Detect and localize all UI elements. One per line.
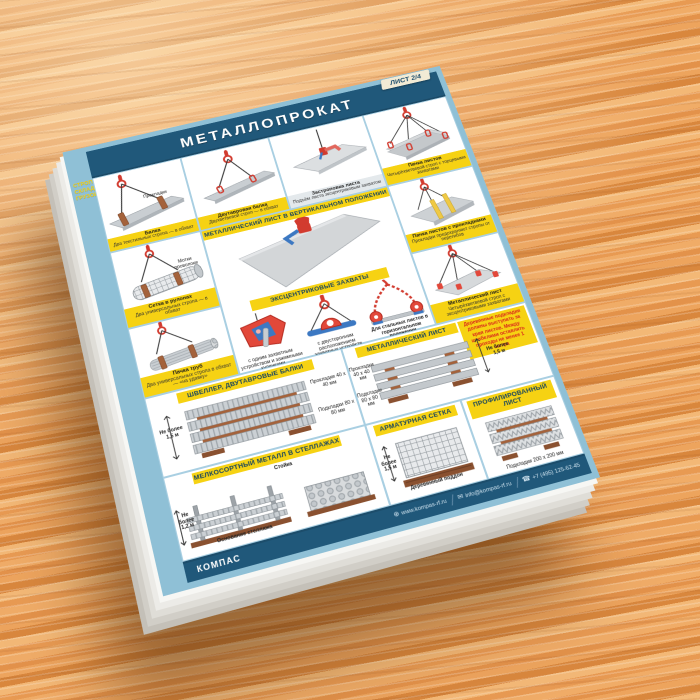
footer-site-text: www.kompas-rf.ru — [401, 498, 448, 516]
envelope-icon: ✉ — [457, 494, 465, 502]
footer-divider — [452, 494, 453, 505]
globe-icon: ⊕ — [393, 511, 401, 519]
phone-icon: ☎ — [521, 476, 531, 485]
footer-divider — [517, 477, 518, 488]
